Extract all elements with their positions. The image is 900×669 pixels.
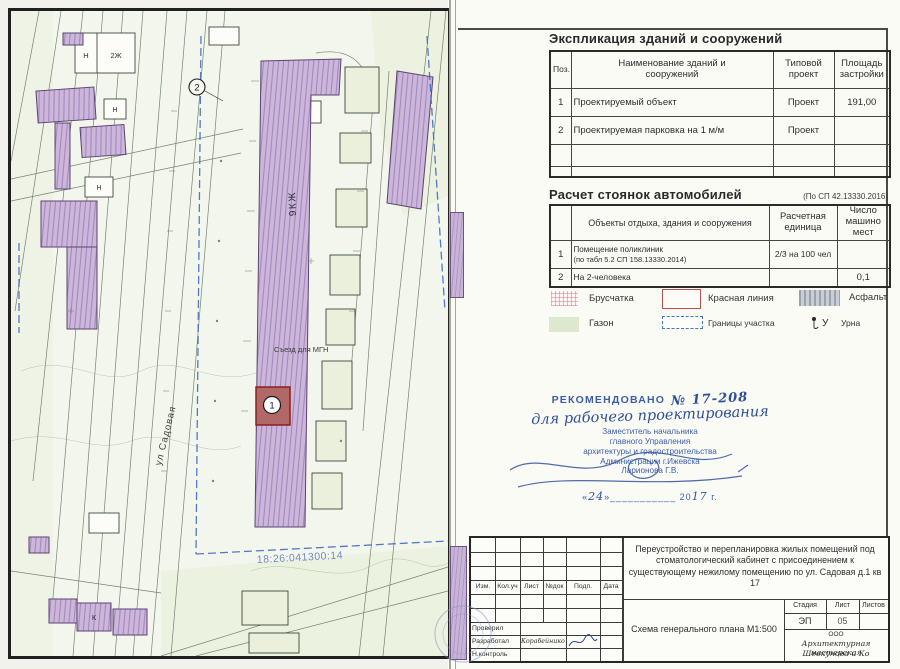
col-header-count: Число машино мест xyxy=(837,205,890,240)
legend-label-asphalt: Асфальт xyxy=(849,292,887,303)
table-row xyxy=(550,144,890,166)
rev-col-list: Лист xyxy=(520,583,543,590)
bldg-label-2zh: 2Ж xyxy=(110,51,121,60)
stage-value: ЭП xyxy=(784,616,826,626)
sheet-value: 05 xyxy=(826,616,859,626)
rev-col-izm: Изм. xyxy=(471,583,495,590)
sheets-label: Листов xyxy=(859,602,888,609)
drawing-name: Схема генерального плана М1:500 xyxy=(624,624,784,634)
table-row: 2 Проектируемая парковка на 1 м/м Проект xyxy=(550,116,890,144)
sheet-label: Лист xyxy=(826,602,859,609)
purple-strip-top xyxy=(450,212,464,298)
col-header-area: Площадь застройки xyxy=(834,51,890,88)
title-block: Изм. Кол.уч Лист №док Подп. Дата Провери… xyxy=(469,536,890,663)
main-building-label: 9КЖ xyxy=(287,191,299,216)
projected-object: 1 xyxy=(256,387,290,425)
sheet-frame-top xyxy=(458,28,888,30)
legend-swatch-boundary xyxy=(662,316,703,329)
scanned-genplan-sheet: 1 2 9КЖ Съезд для МГН ул Садовая 18:26:0… xyxy=(0,0,900,669)
legend-label-gazon: Газон xyxy=(589,318,614,329)
bldg-label-n1: Н xyxy=(83,51,88,60)
legend-swatch-gazon xyxy=(549,317,579,332)
legend-label-urn: Урна xyxy=(841,318,860,328)
legend-label-red-line: Красная линия xyxy=(708,293,774,304)
legend-swatch-asphalt xyxy=(799,290,840,306)
round-stamp-fragment xyxy=(430,598,496,668)
developer-signature xyxy=(567,633,599,651)
stamp-line1: Заместитель начальника xyxy=(502,427,798,437)
explication-title: Экспликация зданий и сооружений xyxy=(549,31,782,46)
explication-table: Поз. Наименование зданий и сооружений Ти… xyxy=(549,50,891,178)
urn-icon: У xyxy=(810,314,836,337)
table-row: 1 Помещение поликлиник (по табл 5.2 СП 1… xyxy=(550,240,890,268)
col-header-pos: Поз. xyxy=(550,51,571,88)
rev-col-data: Дата xyxy=(600,583,622,590)
parking-title: Расчет стоянок автомобилей xyxy=(549,187,742,202)
urn-symbol: У xyxy=(822,318,829,329)
col-header-name: Наименование зданий и сооружений xyxy=(571,51,773,88)
parking-table: Объекты отдыха, здания и сооружения Расч… xyxy=(549,204,891,288)
stamp-recommended: РЕКОМЕНДОВАНО xyxy=(552,394,666,406)
stamp-signature xyxy=(500,440,770,502)
bldg-label-n2: Н xyxy=(112,107,117,114)
bldg-label-n3: Н xyxy=(96,185,101,192)
legend-swatch-red-line xyxy=(662,289,701,309)
col-header-type: Типовой проект xyxy=(773,51,834,88)
developer-name: Корабейников xyxy=(521,638,565,645)
table-row: 1 Проектируемый объект Проект 191,00 xyxy=(550,88,890,116)
map-canvas: 1 2 9КЖ Съезд для МГН ул Садовая 18:26:0… xyxy=(11,11,448,656)
site-plan-map: 1 2 9КЖ Съезд для МГН ул Садовая 18:26:0… xyxy=(8,8,451,659)
col-header-pos2 xyxy=(550,205,571,240)
table-row: 2 На 2-человека 0,1 xyxy=(550,268,890,287)
rev-col-podp: Подп. xyxy=(566,583,600,590)
rev-col-koluch: Кол.уч xyxy=(495,583,520,590)
col-header-objects: Объекты отдыха, здания и сооружения xyxy=(571,205,769,240)
parking-note: (По СП 42.13330.2016) xyxy=(760,192,888,201)
project-title: Переустройство и перепланировка жилых по… xyxy=(628,544,882,596)
marker-2-label: 2 xyxy=(194,83,199,94)
legend-label-boundary: Границы участка xyxy=(708,318,775,328)
company-name-line2: Шевкунова и Ко xyxy=(784,649,888,658)
marker-1-label: 1 xyxy=(269,401,274,412)
ramp-label: Съезд для МГН xyxy=(274,345,328,354)
col-header-unit: Расчетная единица xyxy=(769,205,837,240)
legend-label-bruschatka: Брусчатка xyxy=(589,293,634,304)
rev-col-ndok: №док xyxy=(543,583,566,590)
table-row xyxy=(550,166,890,177)
legend-swatch-bruschatka xyxy=(551,291,578,306)
stage-label: Стадия xyxy=(784,602,826,609)
company-type: ООО xyxy=(784,631,888,638)
